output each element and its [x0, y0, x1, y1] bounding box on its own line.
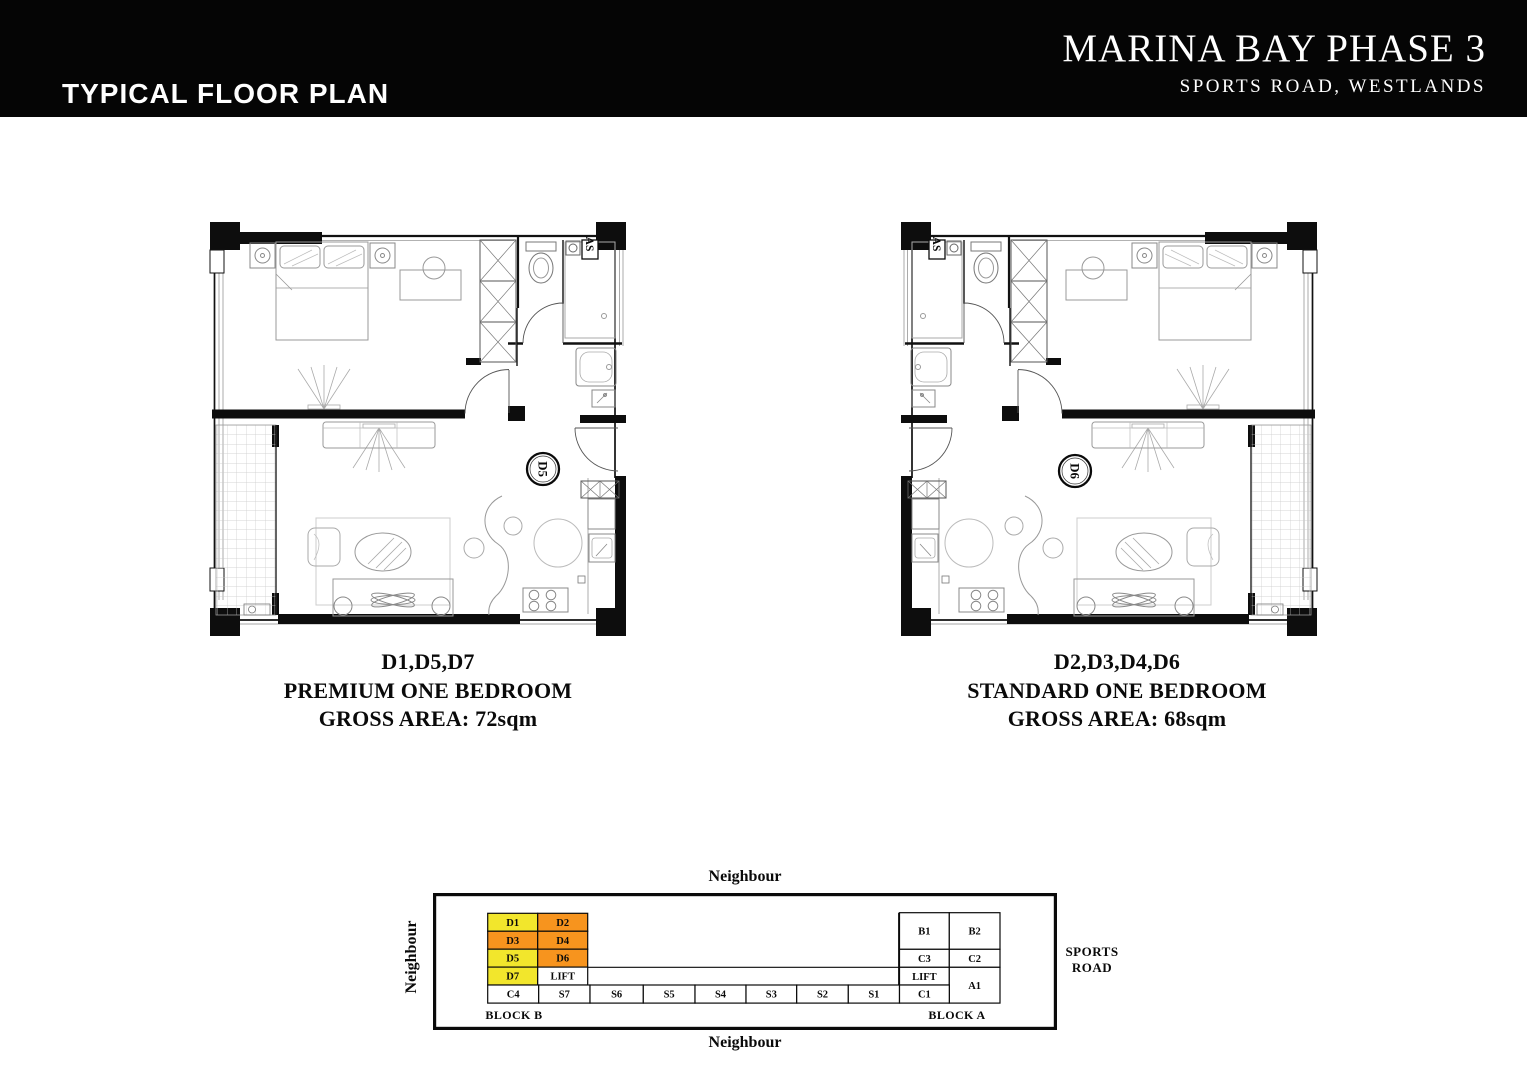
key-plan-cell-label: LIFT	[550, 972, 575, 983]
unit-label-text: D5	[536, 461, 551, 477]
key-plan-cell-label: S6	[611, 990, 622, 1001]
key-plan-cell-label: B2	[969, 927, 981, 938]
as-label: AS	[930, 237, 942, 252]
key-plan-cell-label: S3	[766, 990, 777, 1001]
sports-road-label: SPORTS ROAD	[1060, 944, 1124, 976]
key-plan-cell-label: D3	[506, 936, 519, 947]
header: TYPICAL FLOOR PLAN MARINA BAY PHASE 3 SP…	[0, 0, 1527, 117]
key-plan-cell-label: C3	[918, 954, 931, 965]
key-plan-cell-label: B1	[918, 927, 930, 938]
fixture-label-as: AS	[930, 237, 942, 252]
caption-standard: D2,D3,D4,D6 STANDARD ONE BEDROOM GROSS A…	[897, 648, 1337, 734]
key-plan-cell-label: D1	[506, 918, 519, 929]
floor-plan-drawing-d5: AS D5	[208, 216, 628, 646]
block-a-label: BLOCK A	[928, 1008, 985, 1022]
key-plan-cell-label: D4	[556, 936, 570, 947]
floor-plan-sheet: TYPICAL FLOOR PLAN MARINA BAY PHASE 3 SP…	[0, 0, 1527, 1080]
key-plan-cell-label: S7	[559, 990, 570, 1001]
floor-plan-premium-one-bedroom: AS D5	[208, 216, 628, 646]
key-plan-cell-label: D7	[506, 972, 519, 983]
as-label: AS	[583, 237, 595, 252]
neighbour-label-top: Neighbour	[645, 868, 845, 886]
neighbour-label-bottom: Neighbour	[645, 1034, 845, 1052]
caption-area: GROSS AREA: 68sqm	[897, 705, 1337, 734]
key-plan-cell-label: C1	[918, 990, 931, 1001]
key-plan-cell-label: D5	[506, 954, 519, 965]
fixture-label-as: AS	[583, 237, 595, 252]
key-plan-cell-label: LIFT	[912, 972, 937, 983]
key-plan-cell-label: C2	[968, 954, 981, 965]
caption-type: PREMIUM ONE BEDROOM	[208, 677, 648, 706]
caption-area: GROSS AREA: 72sqm	[208, 705, 648, 734]
road-label-line1: SPORTS	[1060, 944, 1124, 960]
caption-units: D1,D5,D7	[208, 648, 648, 677]
caption-premium: D1,D5,D7 PREMIUM ONE BEDROOM GROSS AREA:…	[208, 648, 648, 734]
key-plan-cell-label: A1	[968, 981, 981, 992]
key-plan-cell-label: D6	[556, 954, 569, 965]
unit-label-text: D6	[1068, 463, 1083, 479]
block-b-label: BLOCK B	[485, 1008, 542, 1022]
key-plan-drawing: D1D2D3D4D5D6D7LIFTC4S7S6S5S4S3S2S1B1B2C3…	[433, 893, 1057, 1031]
page-title: TYPICAL FLOOR PLAN	[62, 78, 389, 110]
key-plan-cell-label: S5	[664, 990, 675, 1001]
project-subtitle: SPORTS ROAD, WESTLANDS	[1180, 76, 1486, 98]
unit-label-d5: D5	[527, 453, 559, 485]
neighbour-label-left: Neighbour	[403, 887, 423, 1027]
road-label-line2: ROAD	[1060, 960, 1124, 976]
caption-type: STANDARD ONE BEDROOM	[897, 677, 1337, 706]
key-plan: D1D2D3D4D5D6D7LIFTC4S7S6S5S4S3S2S1B1B2C3…	[433, 893, 1057, 1031]
key-plan-cell-label: S4	[715, 990, 727, 1001]
floor-plan-drawing-d6: AS D6	[899, 216, 1319, 646]
key-plan-cell-label: S2	[817, 990, 828, 1001]
unit-label-d6: D6	[1059, 455, 1091, 487]
key-plan-cell-label: C4	[507, 990, 521, 1001]
project-title: MARINA BAY PHASE 3	[1062, 26, 1486, 71]
key-plan-cell-label: S1	[868, 990, 879, 1001]
caption-units: D2,D3,D4,D6	[897, 648, 1337, 677]
key-plan-cell-label: D2	[556, 918, 569, 929]
floor-plan-standard-one-bedroom: AS D6	[899, 216, 1319, 646]
